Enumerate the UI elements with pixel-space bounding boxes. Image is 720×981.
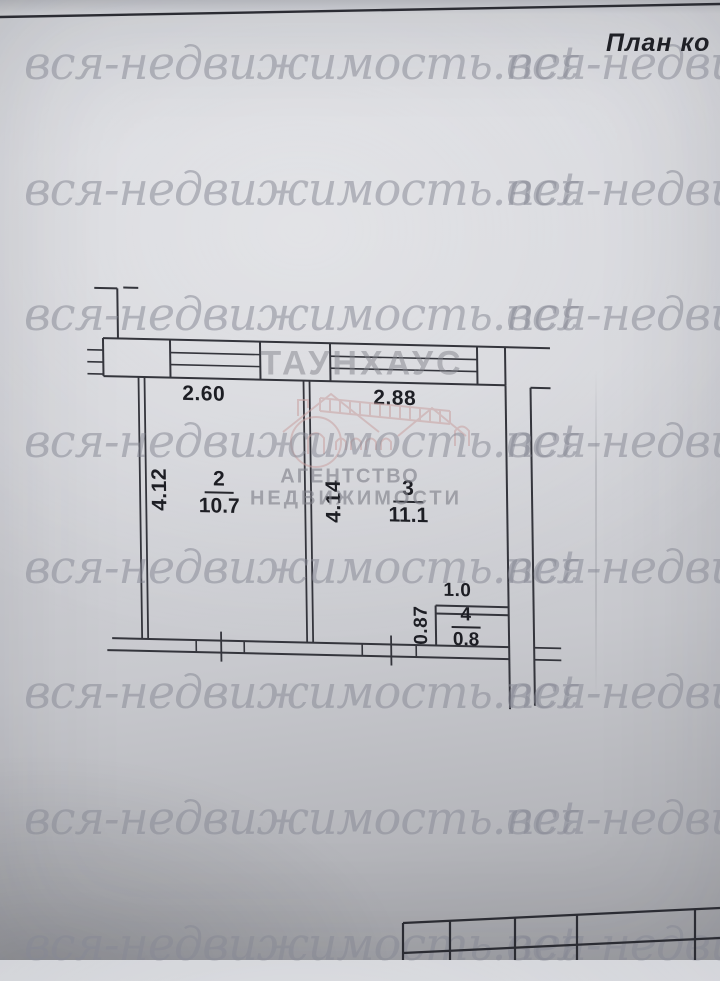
room2-number: 2 — [204, 468, 234, 494]
floor-plan: 2.60 2.88 4.12 4.14 1.0 0.87 2 10.7 3 11… — [0, 0, 720, 974]
room4-width-dim: 1.0 — [443, 580, 471, 603]
room4-height-dim: 0.87 — [411, 605, 434, 644]
room4-label: 4 0.8 — [451, 605, 480, 651]
room2-height-dim: 4.12 — [148, 468, 173, 511]
window-room2 — [170, 353, 260, 367]
room4-number: 4 — [451, 605, 480, 629]
room2-width-dim: 2.60 — [182, 382, 225, 407]
top-wall — [87, 338, 551, 387]
floor-plan-lines — [0, 0, 720, 974]
room3-area: 11.1 — [388, 503, 428, 528]
bottom-wall — [107, 629, 509, 668]
window-room3 — [330, 356, 477, 371]
room3-number: 3 — [393, 478, 423, 504]
room3-height-dim: 4.14 — [322, 480, 347, 523]
floor-plan-photo-page: { "header": { "title_visible": "План ко"… — [0, 0, 720, 960]
room2-label: 2 10.7 — [198, 468, 240, 519]
page-title: План ко — [606, 29, 710, 58]
right-walls — [506, 385, 563, 710]
balcony-outline — [94, 287, 139, 339]
room3-width-dim: 2.88 — [373, 386, 416, 411]
room2-area: 10.7 — [199, 494, 240, 519]
room3-label: 3 11.1 — [388, 477, 428, 528]
room4-area: 0.8 — [453, 629, 480, 651]
